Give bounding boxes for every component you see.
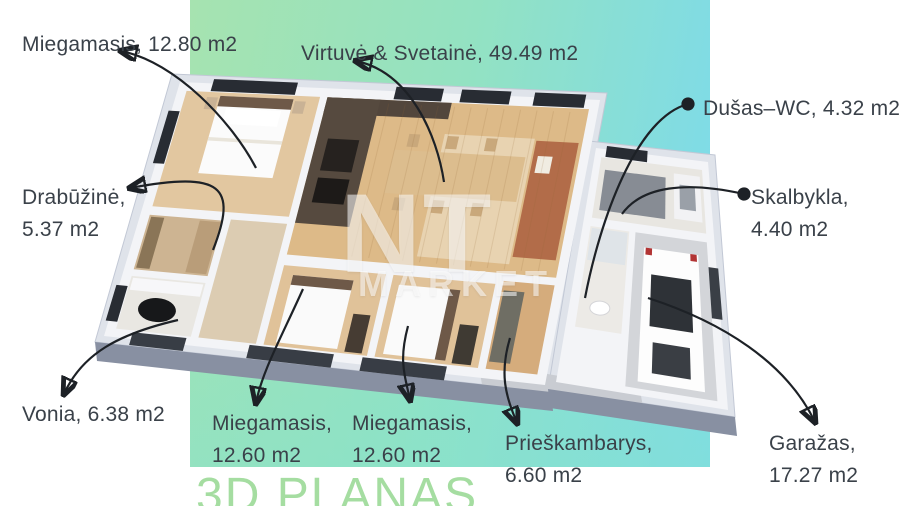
label-miegamasis-b1: Miegamasis, 12.60 m2	[212, 408, 332, 472]
label-text: Drabūžinė,	[22, 182, 126, 214]
label-text: Virtuvė & Svetainė, 49.49 m2	[301, 38, 578, 70]
label-text: 4.40 m2	[751, 214, 849, 246]
label-text: Miegamasis,	[352, 408, 472, 440]
label-text: 17.27 m2	[769, 460, 858, 492]
leader-virtuve	[356, 61, 444, 182]
leader-vonia	[64, 320, 178, 394]
label-drabuzine: Drabūžinė, 5.37 m2	[22, 182, 126, 246]
label-prieskambarys: Prieškambarys, 6.60 m2	[505, 428, 653, 492]
label-miegamasis-top: Miegamasis, 12.80 m2	[22, 29, 237, 61]
label-virtuve-svetaine: Virtuvė & Svetainė, 49.49 m2	[301, 38, 578, 70]
label-vonia: Vonia, 6.38 m2	[22, 399, 165, 431]
label-miegamasis-b2: Miegamasis, 12.60 m2	[352, 408, 472, 472]
leader-prieskambarys	[504, 338, 517, 423]
leader-skalbykla	[622, 187, 744, 214]
page-title: 3D PLANAS	[196, 468, 478, 506]
leader-garazas	[648, 298, 815, 422]
leader-miegamasis-b2	[403, 326, 410, 400]
label-text: Miegamasis,	[212, 408, 332, 440]
label-text: Skalbykla,	[751, 182, 849, 214]
label-text: Vonia, 6.38 m2	[22, 399, 165, 431]
label-text: 5.37 m2	[22, 214, 126, 246]
leader-miegamasis-top	[121, 51, 256, 168]
leader-drabuzine	[130, 182, 224, 250]
leader-miegamasis-b1	[256, 289, 303, 403]
label-garazas: Garažas, 17.27 m2	[769, 428, 858, 492]
label-text: Prieškambarys,	[505, 428, 653, 460]
label-text: Garažas,	[769, 428, 858, 460]
label-dusas-wc: Dušas–WC, 4.32 m2	[703, 93, 900, 125]
label-text: Miegamasis, 12.80 m2	[22, 29, 237, 61]
label-text: 6.60 m2	[505, 460, 653, 492]
label-skalbykla: Skalbykla, 4.40 m2	[751, 182, 849, 246]
label-text: Dušas–WC, 4.32 m2	[703, 93, 900, 125]
floor-plan-image: NT MARKET Miegamasis, 12.80 m2 Virtuvė &…	[0, 0, 900, 506]
